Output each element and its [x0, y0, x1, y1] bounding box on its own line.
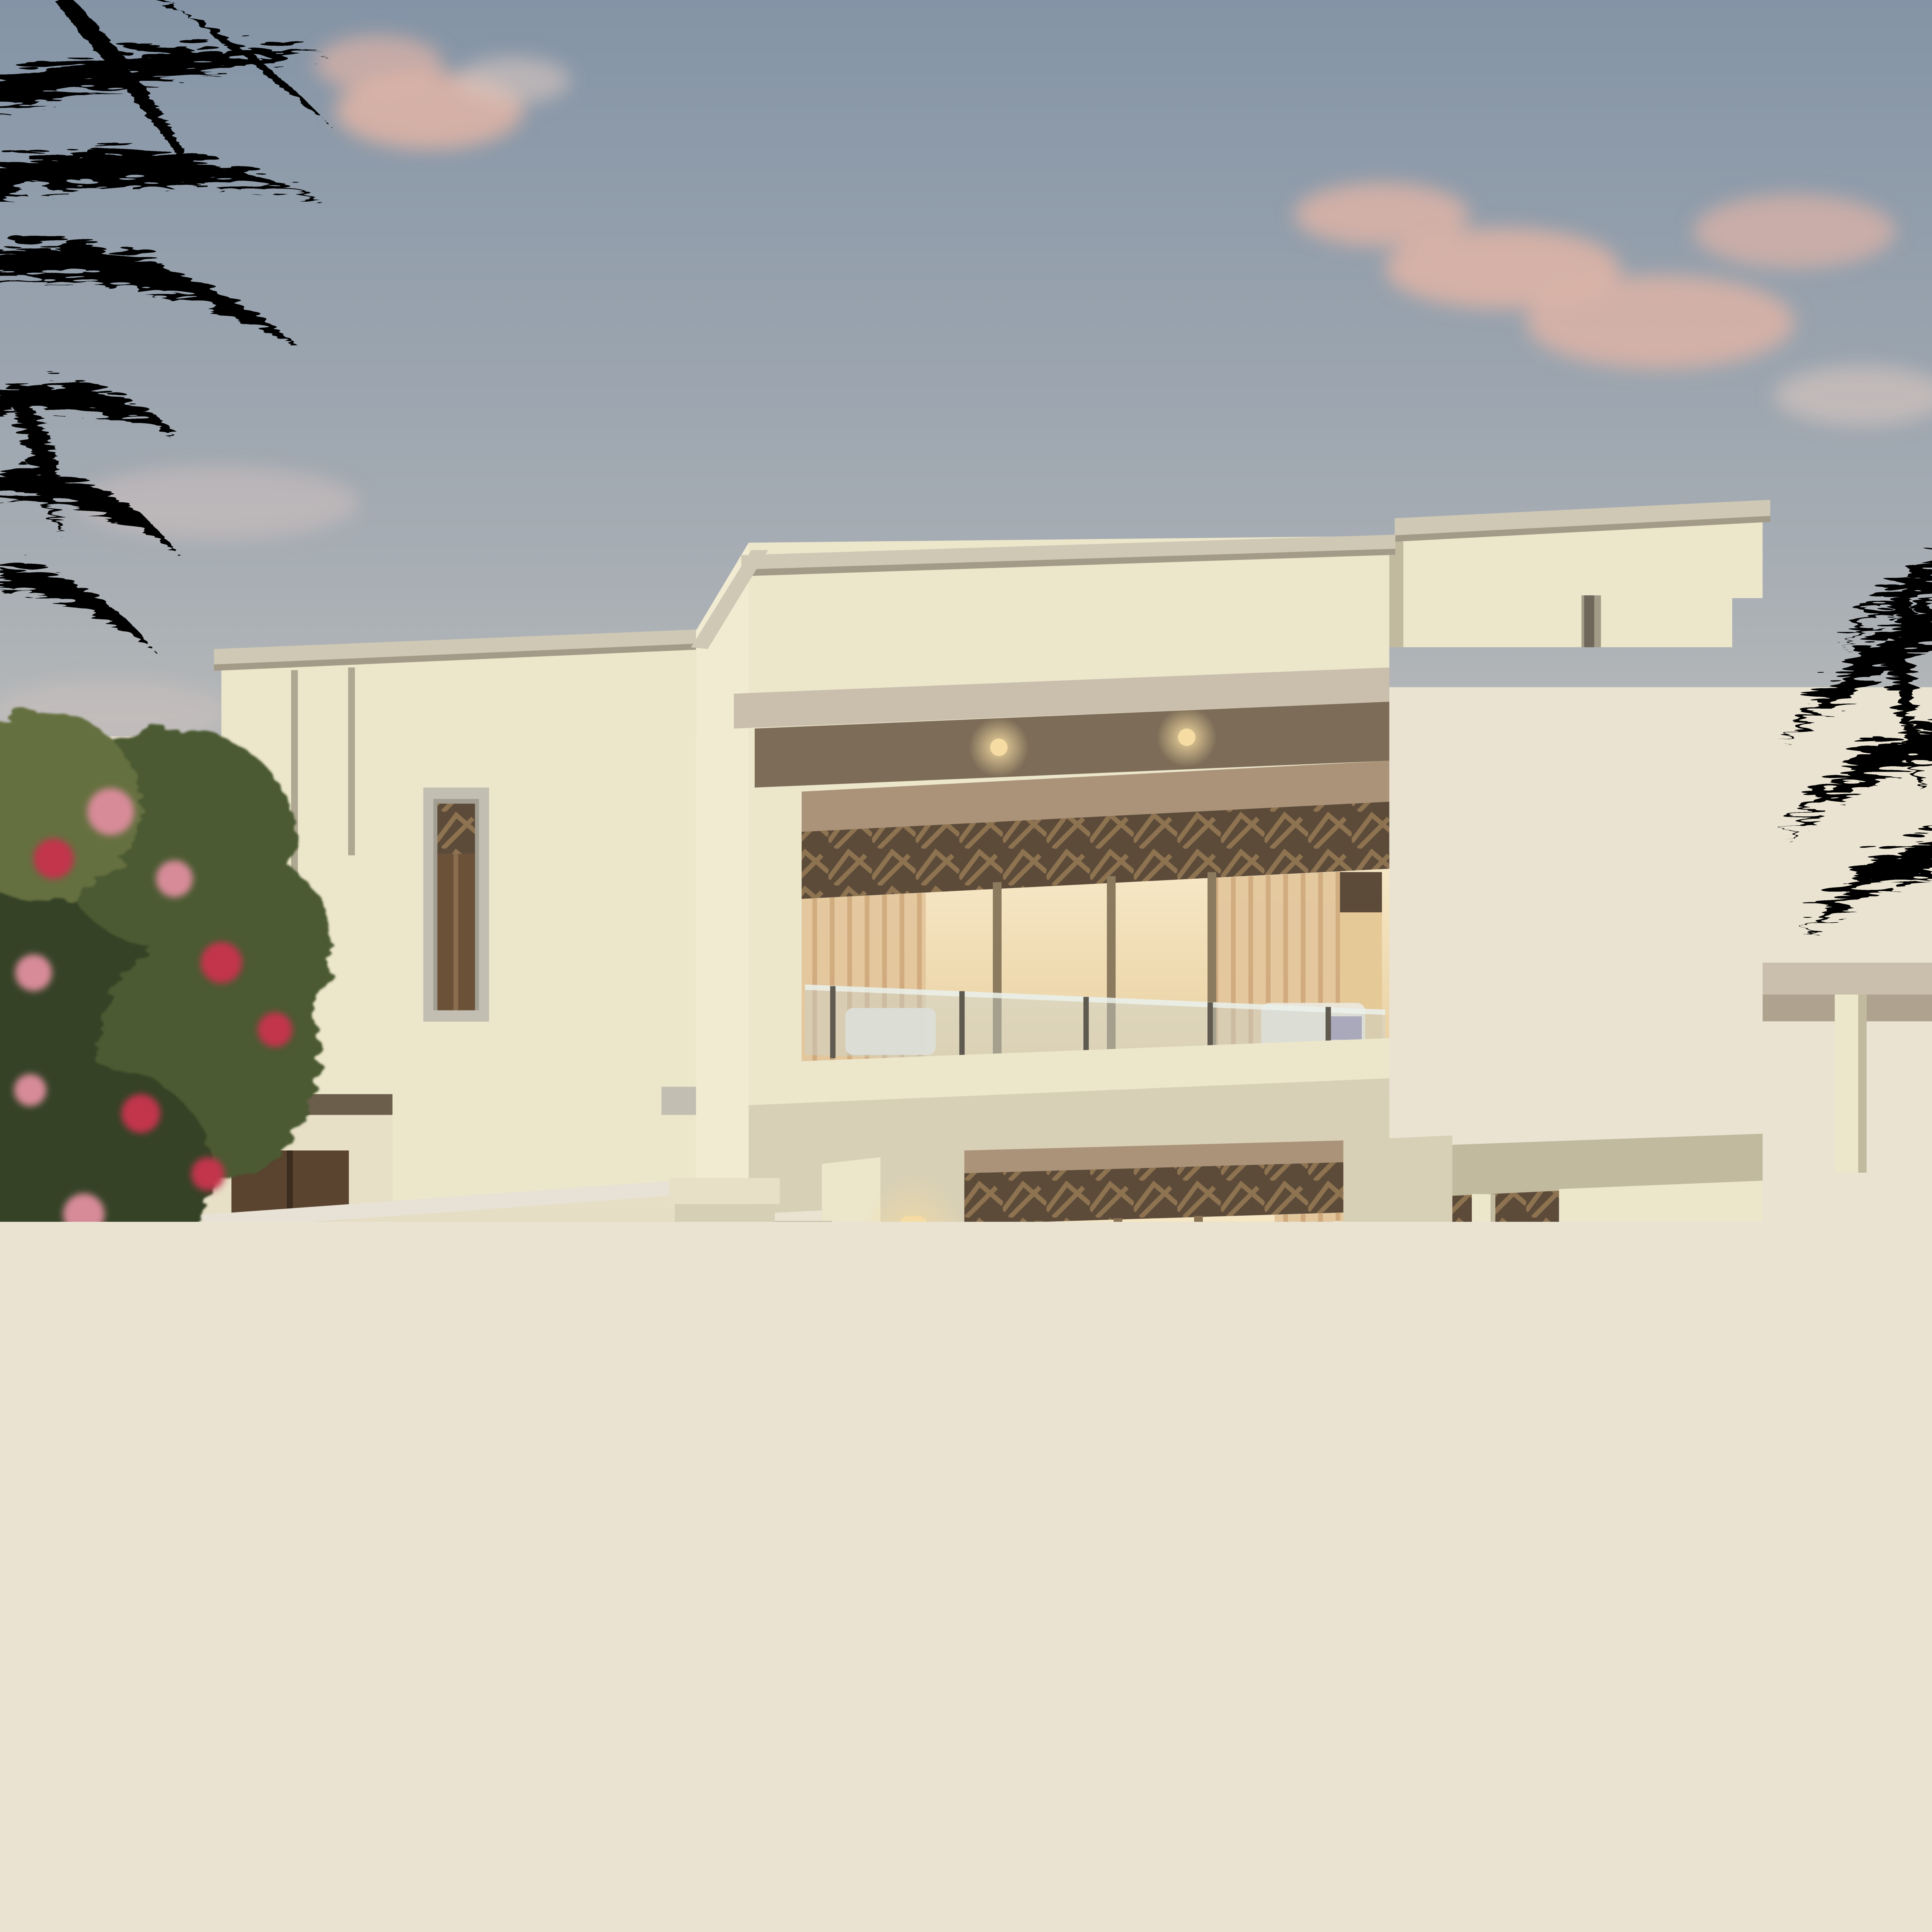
armchair-leg	[1612, 1533, 1620, 1570]
door-frame	[1114, 1218, 1122, 1530]
cloud	[456, 57, 570, 104]
window-lit-glass	[1560, 843, 1636, 1053]
blossom	[87, 788, 134, 835]
white-flower	[1772, 1605, 1783, 1616]
interior-picture-frame	[1134, 1281, 1185, 1346]
left-wing-window	[423, 787, 489, 1022]
blossom	[63, 1194, 105, 1235]
wall-bracket	[1698, 1031, 1731, 1050]
railing-post	[830, 986, 835, 1058]
window-mullion	[1628, 843, 1636, 1053]
blossom	[156, 861, 193, 897]
pergola-beam	[1763, 963, 1932, 994]
woman-head	[1214, 1411, 1243, 1440]
red-flower	[919, 1852, 946, 1878]
blossom	[201, 942, 242, 984]
man2-torso	[1389, 1429, 1449, 1543]
railing-post	[959, 991, 965, 1063]
armchair-leg	[1542, 1533, 1550, 1570]
tower-window	[1534, 755, 1662, 1079]
blossom	[258, 1012, 293, 1047]
cloud	[1694, 194, 1895, 268]
blossom	[191, 1157, 225, 1191]
tower-slot-inner	[1584, 595, 1594, 743]
cloud	[315, 35, 443, 92]
wall-pillar-cap	[669, 1178, 780, 1204]
white-flower	[1797, 1582, 1812, 1597]
white-flower	[1858, 1590, 1872, 1604]
window-lattice-pattern	[1560, 777, 1636, 843]
terrace-curtains-left	[964, 1222, 1035, 1536]
wall-sconce-texture	[899, 1216, 928, 1310]
recessed-downlight	[1178, 728, 1196, 746]
man1-torso	[1299, 1424, 1352, 1543]
blossom	[14, 1074, 46, 1106]
window-mullion	[454, 854, 458, 1010]
wall-pillar	[675, 1204, 775, 1643]
foreground-ground-shadow	[0, 1885, 1932, 1932]
wall-return-segment	[775, 1221, 832, 1644]
window-sill	[1534, 1066, 1662, 1079]
interior-console	[1056, 1402, 1190, 1462]
pergola-column-shade	[1858, 995, 1867, 1441]
blossom	[15, 954, 52, 991]
window-lattice-pattern	[437, 804, 475, 854]
person-woman-abaya	[1203, 1411, 1257, 1648]
facade-slot-groove	[348, 667, 355, 855]
recessed-bay-glow	[1391, 782, 1402, 1080]
scene-canvas	[0, 0, 1932, 1932]
door-frame	[1035, 1221, 1044, 1535]
red-flower	[1054, 1859, 1079, 1884]
blossom	[121, 1094, 160, 1133]
interior-picture-frame	[1063, 1285, 1107, 1344]
armchair-seat	[1536, 1466, 1625, 1536]
side-opening-lattice-pattern	[1452, 1191, 1559, 1254]
planter-pot	[1625, 1456, 1696, 1543]
recessed-downlight	[990, 738, 1008, 756]
umbrella-finial	[1330, 1221, 1346, 1248]
blossom	[34, 838, 74, 879]
villa-render-image	[0, 0, 1932, 1932]
dining-chair	[993, 1529, 1060, 1613]
cloud	[1526, 275, 1794, 369]
terrace-column-shade	[1491, 1194, 1495, 1519]
white-flower	[1829, 1570, 1841, 1582]
balcony-end-doorway-lattice	[1340, 872, 1382, 912]
